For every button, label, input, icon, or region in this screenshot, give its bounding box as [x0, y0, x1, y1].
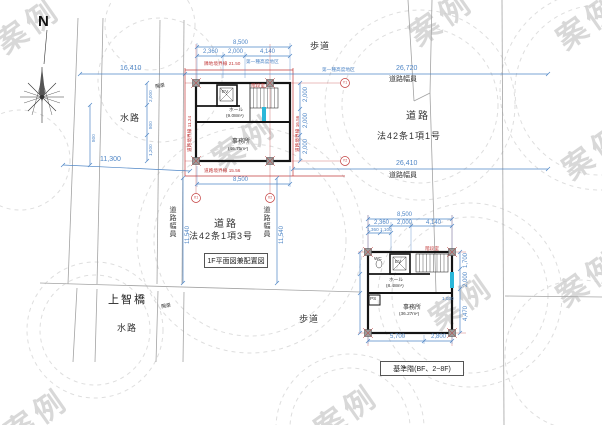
- dim-26410: 26,410: [396, 160, 417, 167]
- plan2-dim-sub2: 1,100: [380, 228, 392, 233]
- plan1-title-text: 1F平面図兼配置図: [207, 256, 264, 266]
- zone-note-b: 第一種高度地区: [322, 68, 355, 73]
- dim-16410: 16,410: [120, 65, 141, 72]
- plan2-dim-door: 1,030: [442, 297, 454, 302]
- boundary-south-label: 道路境界線 15.56: [204, 169, 240, 174]
- road-east-law-label: 法42条1項1号: [377, 132, 441, 141]
- plan2-wc-label: WC: [374, 257, 382, 262]
- plan1-title: 1F平面図兼配置図: [204, 253, 268, 268]
- boundary-east-label: 道路境界線 16.56: [296, 116, 301, 152]
- plan2-ps-label: PS: [370, 297, 376, 302]
- plan1-dim-seg2: 2,000: [228, 49, 243, 55]
- compass-icon: [20, 30, 64, 123]
- road-width-label-right: 道路幅員: [263, 206, 270, 238]
- plan1-dim-right2: 2,000: [303, 113, 309, 128]
- stairs-icon: [250, 88, 278, 108]
- plan1-ev-label: EV: [222, 90, 228, 95]
- plan2-dim-right1: 1,700: [463, 253, 469, 268]
- road-width-label-top: 道路幅員: [389, 76, 417, 83]
- plan2-dim-right3: 4,470: [463, 306, 469, 321]
- plan1-dim-total-bottom: 8,500: [233, 177, 248, 183]
- grid-bubble-y1: Y1: [342, 81, 348, 85]
- door-marker: [450, 272, 454, 288]
- plan1-dim-west3: 1,200: [149, 144, 154, 156]
- dim-11540-left: 11,540: [185, 226, 191, 244]
- plan1-dim-west1: 2,000: [149, 90, 154, 102]
- door-marker: [262, 107, 266, 121]
- waterway-label-bottom: 水路: [117, 324, 137, 333]
- plan2-office-area: (36.27m²): [399, 312, 419, 317]
- road-width-label-mid: 道路幅員: [389, 172, 417, 179]
- boundary-west-label: 道路境界線 11.24: [188, 116, 193, 152]
- grid-bubble-y2: Y2: [342, 159, 348, 163]
- plan2-dim-bottom2: 2,800: [431, 334, 446, 340]
- road-south-label: 道路: [214, 220, 238, 230]
- dim-11540-right: 11,540: [279, 226, 285, 244]
- sidewalk-label-bottom: 歩道: [299, 315, 319, 324]
- plan2-dim-seg3: 4,140: [426, 220, 441, 226]
- plan1-hall-area: (9.08m²): [226, 114, 244, 119]
- plan2-dim-right2: 2,000: [463, 272, 469, 287]
- plan1-dim-total-top: 8,500: [233, 40, 248, 46]
- zone-note-a: 第一種高度地区: [246, 60, 279, 65]
- site-lines: [40, 0, 602, 425]
- plan1-dim-seg1: 2,360: [203, 49, 218, 55]
- plan1-hall-label: ホール: [229, 108, 243, 113]
- drawing-canvas: 案例 案例 案例 案例 案例 案例 案例 案例 案例: [0, 0, 602, 425]
- road-south-law-label: 法42条1項3号: [189, 232, 253, 241]
- north-label: N: [38, 13, 49, 30]
- road-east-label: 道路: [406, 112, 430, 122]
- dim-west-small: 800: [92, 134, 97, 142]
- plan1-dim-seg3: 4,140: [260, 49, 275, 55]
- plan2-dim-sub1: 1,360: [367, 228, 379, 233]
- boundary-north-label: 隣地境界線 21.50: [204, 62, 240, 67]
- plan2-dim-bottom1: 5,700: [390, 334, 405, 340]
- plan2-title-text: 基準階(BF、2~8F): [393, 364, 451, 374]
- bridge-label: 上智橋: [108, 291, 147, 307]
- plan1-dim-west2: 800: [149, 121, 154, 129]
- dim-11300: 11,300: [100, 156, 121, 163]
- plan2-stair-note: 階段室: [425, 247, 439, 252]
- drawing-lines: [0, 0, 602, 425]
- plan2-dim-seg2: 2,000: [397, 220, 412, 226]
- grid-bubble-x2: X2: [267, 196, 273, 200]
- plan1-office-label: 事務所: [232, 139, 250, 145]
- plan2-dim-total-top: 8,500: [397, 212, 412, 218]
- plan1-stair-note: 階段室: [251, 84, 265, 89]
- plan1-dim-right3: 2,000: [303, 139, 309, 154]
- dim-26720: 26,720: [396, 65, 417, 72]
- plan2-hall-label: ホール: [389, 278, 403, 283]
- road-width-label-left: 道路幅員: [169, 206, 176, 238]
- stairs-icon: [416, 254, 448, 272]
- sidewalk-label-top: 歩道: [310, 42, 330, 51]
- plan1-building: [191, 78, 290, 166]
- plan1-dim-right1: 2,000: [303, 87, 309, 102]
- plan2-dim-seg1: 2,360: [374, 220, 389, 226]
- waterway-label-top: 水路: [120, 114, 140, 123]
- plan2-hall-area: (8.48m²): [386, 284, 404, 289]
- plan2-ev-label: EV: [395, 260, 401, 265]
- plan1-office-area: (46.75m²): [228, 147, 248, 152]
- grid-bubble-x1: X1: [193, 196, 199, 200]
- plan2-title: 基準階(BF、2~8F): [380, 361, 464, 376]
- plan2-office-label: 事務所: [403, 305, 421, 311]
